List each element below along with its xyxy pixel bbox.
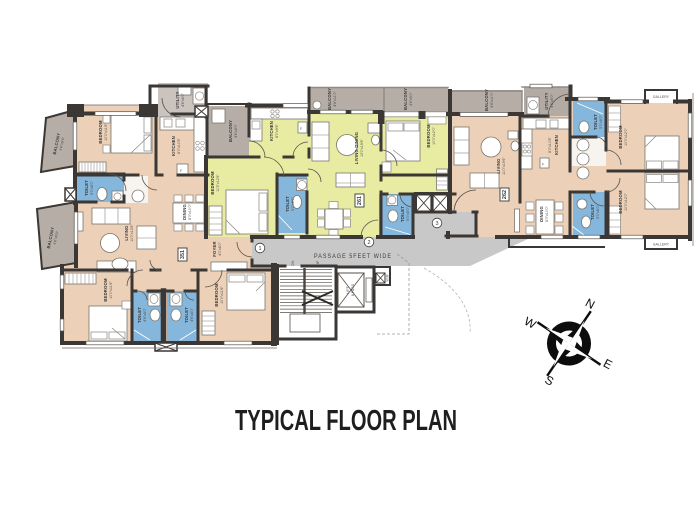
svg-text:TYPICAL FLOOR PLAN: TYPICAL FLOOR PLAN: [235, 405, 457, 437]
svg-text:13'0"x19'6": 13'0"x19'6": [360, 138, 364, 157]
svg-text:10'0"x11'6": 10'0"x11'6": [220, 286, 224, 304]
svg-text:TOILET: TOILET: [590, 204, 595, 220]
svg-text:4'0"x8'0": 4'0"x8'0": [218, 241, 222, 256]
svg-text:TOILET: TOILET: [137, 307, 142, 323]
svg-text:5'0"x8'0": 5'0"x8'0": [90, 180, 94, 195]
svg-text:262: 262: [502, 190, 508, 199]
svg-text:BEDROOM: BEDROOM: [103, 278, 108, 302]
svg-text:BALCONY: BALCONY: [403, 88, 408, 110]
svg-text:8'0"x9'6": 8'0"x9'6": [275, 123, 279, 138]
svg-text:8 PASS: 8 PASS: [351, 283, 355, 296]
svg-text:BEDROOM: BEDROOM: [98, 120, 103, 144]
svg-text:UP: UP: [316, 260, 320, 266]
svg-text:BEDROOM: BEDROOM: [618, 125, 623, 149]
svg-text:KITCHEN: KITCHEN: [269, 121, 274, 141]
svg-text:F: F: [542, 163, 544, 167]
svg-text:5'0"x8'0": 5'0"x8'0": [599, 114, 603, 129]
svg-text:BALCONY: BALCONY: [484, 89, 489, 111]
svg-text:TOILET: TOILET: [285, 196, 290, 212]
svg-text:2: 2: [367, 240, 370, 246]
svg-text:LIVING: LIVING: [496, 158, 501, 173]
svg-text:TOILET: TOILET: [184, 307, 189, 323]
svg-text:UTILITY: UTILITY: [175, 91, 180, 108]
svg-text:DINING: DINING: [182, 204, 187, 220]
svg-text:11'0"x13'6": 11'0"x13'6": [130, 224, 134, 242]
svg-text:4'6"x11'0": 4'6"x11'0": [333, 91, 337, 107]
svg-text:4'6"x8'0": 4'6"x8'0": [190, 307, 194, 322]
svg-text:351: 351: [180, 250, 186, 259]
svg-text:UTILITY: UTILITY: [544, 92, 549, 109]
svg-text:KITCHEN: KITCHEN: [554, 135, 559, 155]
svg-text:10'0"x11'6": 10'0"x11'6": [109, 281, 113, 299]
svg-text:1: 1: [258, 246, 261, 252]
svg-text:LIVING: LIVING: [124, 225, 129, 240]
svg-text:GALLERY: GALLERY: [653, 243, 670, 247]
svg-text:10'0"x12'0": 10'0"x12'0": [624, 127, 628, 146]
svg-text:5'0"x8'0": 5'0"x8'0": [406, 206, 410, 221]
svg-text:BEDROOM: BEDROOM: [210, 171, 215, 195]
svg-text:10'0"x12'0": 10'0"x12'0": [624, 192, 628, 211]
svg-text:3: 3: [435, 221, 438, 227]
svg-text:4'6"x8'0": 4'6"x8'0": [234, 123, 238, 138]
svg-text:11'3"x12'6": 11'3"x12'6": [216, 174, 220, 192]
svg-text:5'0"x8'0": 5'0"x8'0": [596, 204, 600, 219]
svg-text:5'0"x8'0": 5'0"x8'0": [291, 196, 295, 211]
svg-text:DN: DN: [291, 260, 295, 266]
svg-text:8'0"x10'6": 8'0"x10'6": [177, 137, 181, 154]
svg-text:10'0"x11'6": 10'0"x11'6": [104, 123, 108, 141]
svg-text:F: F: [180, 169, 182, 173]
svg-text:DINING: DINING: [539, 206, 544, 222]
svg-text:PASSAGE 5FEET WIDE: PASSAGE 5FEET WIDE: [314, 253, 392, 260]
svg-text:TOILET: TOILET: [84, 180, 89, 196]
svg-text:8'0"x10'0": 8'0"x10'0": [188, 203, 192, 220]
svg-text:4'6"x8'0": 4'6"x8'0": [143, 307, 147, 322]
svg-text:F: F: [300, 127, 302, 131]
svg-text:8'0"x10'0": 8'0"x10'0": [545, 205, 549, 222]
svg-text:FOYER: FOYER: [212, 241, 217, 256]
svg-text:GALLERY: GALLERY: [653, 95, 670, 99]
svg-text:8'0"x10'6": 8'0"x10'6": [548, 136, 552, 153]
svg-text:BALCONY: BALCONY: [327, 88, 332, 110]
svg-text:10'0"x12'0": 10'0"x12'0": [432, 126, 436, 145]
svg-text:4'6"x9'0": 4'6"x9'0": [409, 91, 413, 106]
svg-text:TOILET: TOILET: [400, 206, 405, 222]
svg-text:4'6"x6'0": 4'6"x6'0": [181, 92, 185, 107]
svg-text:LIVING DINING: LIVING DINING: [354, 132, 359, 164]
svg-text:261: 261: [357, 196, 363, 205]
svg-text:BEDROOM: BEDROOM: [618, 190, 623, 214]
svg-text:4'6"x11'0": 4'6"x11'0": [490, 92, 494, 108]
svg-text:KITCHEN: KITCHEN: [171, 136, 176, 156]
svg-text:BEDROOM: BEDROOM: [214, 283, 219, 307]
svg-text:W.M: W.M: [386, 274, 390, 281]
svg-text:BEDROOM: BEDROOM: [426, 124, 431, 148]
svg-text:11'0"x19'6": 11'0"x19'6": [502, 157, 506, 175]
svg-text:TOILET: TOILET: [593, 114, 598, 130]
svg-text:LIFT: LIFT: [346, 286, 350, 293]
svg-text:BALCONY: BALCONY: [228, 120, 233, 142]
